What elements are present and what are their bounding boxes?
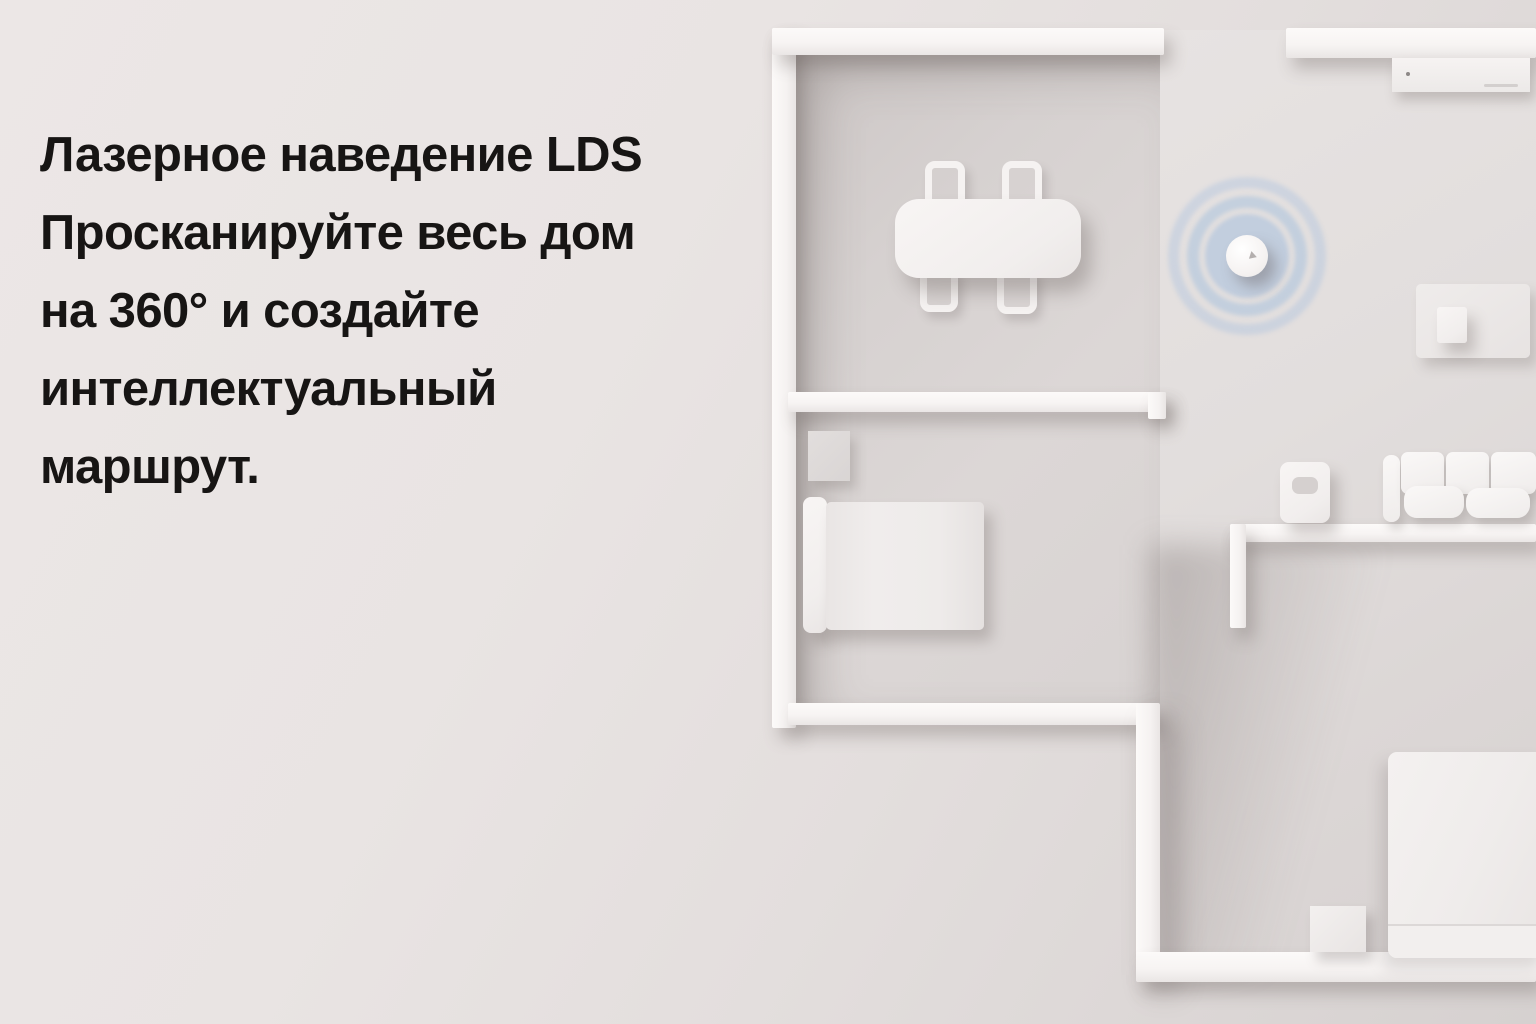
tv-cabinet (1392, 58, 1530, 92)
bedside-cube (1310, 906, 1366, 952)
armchair-handle-cutout (1292, 477, 1318, 494)
robot-logo-icon (1249, 251, 1258, 261)
double-bed-footboard (1388, 924, 1536, 958)
banner: Лазерное наведение LDS Просканируйте вес… (0, 0, 1536, 1024)
single-bed-headboard (803, 497, 827, 633)
nightstand (808, 431, 850, 481)
headline-line-1: Лазерное наведение LDS (40, 116, 730, 194)
headline-line-2: Просканируйте весь дом (40, 194, 730, 272)
sofa-seat-cushion (1466, 488, 1530, 518)
headline-line-4: интеллектуальный (40, 350, 730, 428)
cabinet-knob (1406, 72, 1410, 76)
sofa-armrest (1383, 455, 1400, 522)
single-bed (826, 502, 984, 630)
wall-lower-left (788, 703, 1158, 725)
wall-top-right (1286, 28, 1536, 58)
wall-living-room (1230, 524, 1536, 542)
wall-left (772, 28, 796, 728)
armchair (1280, 462, 1330, 523)
double-bed (1388, 752, 1536, 958)
cabinet-handle-slot (1484, 84, 1518, 87)
rug (1416, 284, 1530, 358)
robot-vacuum (1226, 235, 1268, 277)
wall-middle (788, 392, 1166, 412)
dining-table (895, 199, 1081, 278)
rug-cube (1437, 307, 1467, 343)
wall-living-endcap (1230, 524, 1246, 628)
wall-middle-endcap (1148, 392, 1166, 419)
headline-line-3: на 360° и создайте (40, 272, 730, 350)
wall-divider-vertical (1136, 703, 1160, 971)
sofa-seat-cushion (1404, 486, 1464, 518)
wall-top-left (772, 28, 1164, 55)
headline-line-5: маршрут. (40, 428, 730, 506)
headline: Лазерное наведение LDS Просканируйте вес… (40, 116, 730, 506)
